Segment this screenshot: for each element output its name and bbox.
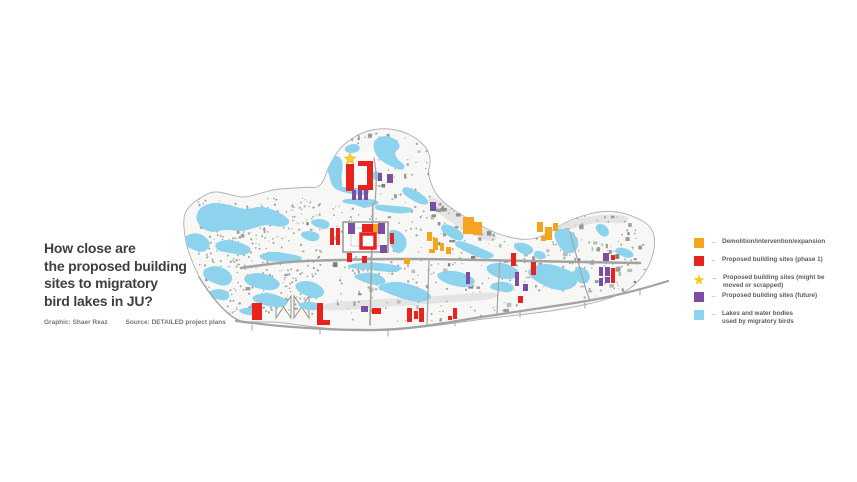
marker-future: [358, 190, 362, 200]
legend-dash: –: [709, 256, 718, 266]
lakes-swatch: [694, 310, 704, 320]
marker-demolition: [537, 222, 543, 232]
legend-label-scrapped: Proposed building sites (might be: [723, 274, 824, 282]
marker-demolition: [553, 223, 558, 231]
credit-graphic: Graphic: Shaer Reaz: [44, 319, 108, 326]
page-title-line-3: sites to migratory: [44, 275, 214, 293]
marker-phase1: [611, 268, 615, 283]
marker-phase1: [362, 256, 367, 263]
page-title-line-1: How close are: [44, 240, 214, 258]
marker-phase1: [611, 255, 615, 260]
page-title-line-4: bird lakes in JU?: [44, 293, 214, 311]
credit-source: Source: DETAILED project plans: [126, 319, 226, 326]
marker-future: [605, 277, 610, 283]
legend-label-future: Proposed building sites (future): [722, 292, 817, 300]
legend-label-demolition: Demolition/intervention/expansion: [722, 238, 825, 246]
marker-phase1: [511, 253, 516, 266]
legend-item-scrapped: – Proposed building sites (might be move…: [694, 274, 857, 289]
legend-dash: –: [710, 274, 719, 284]
marker-phase1: [346, 164, 354, 191]
marker-demolition: [440, 243, 444, 251]
marker-phase1: [317, 320, 330, 325]
marker-phase1: [453, 308, 457, 319]
marker-future: [364, 190, 368, 200]
marker-future: [466, 272, 470, 284]
marker-demolition: [433, 238, 438, 250]
marker-future: [387, 174, 393, 183]
marker-phase1: [347, 253, 352, 262]
legend-label-scrapped-2: moved or scrapped): [723, 282, 824, 290]
legend-item-demolition: – Demolition/intervention/expansion: [694, 238, 857, 248]
marker-phase1: [531, 262, 536, 275]
page-title-line-2: the proposed building: [44, 258, 214, 276]
star-icon: [693, 274, 705, 286]
marker-demolition: [427, 232, 432, 241]
marker-demolition: [404, 258, 410, 264]
legend: – Demolition/intervention/expansion – Pr…: [694, 238, 857, 328]
future-swatch: [694, 292, 704, 302]
phase1-swatch: [694, 256, 704, 266]
marker-future: [378, 173, 382, 181]
marker-future: [603, 253, 609, 261]
legend-item-future: – Proposed building sites (future): [694, 292, 857, 302]
marker-demolition: [463, 217, 474, 234]
marker-phase1: [336, 228, 340, 245]
marker-phase1: [330, 228, 334, 245]
marker-future: [361, 306, 368, 312]
marker-phase1: [390, 233, 394, 244]
infographic-canvas: How close are the proposed building site…: [0, 0, 857, 482]
marker-demolition: [541, 236, 546, 241]
marker-phase1: [362, 224, 373, 232]
marker-future: [599, 267, 603, 276]
marker-demolition: [429, 249, 435, 253]
credits: Graphic: Shaer ReazSource: DETAILED proj…: [44, 319, 226, 326]
marker-phase1: [419, 308, 424, 322]
legend-item-lakes: – Lakes and water bodies used by migrato…: [694, 310, 857, 325]
marker-phase1: [252, 303, 262, 320]
legend-dash: –: [709, 238, 718, 248]
marker-future: [599, 278, 603, 286]
marker-future: [352, 190, 356, 200]
marker-future: [430, 202, 436, 211]
demolition-swatch: [694, 238, 704, 248]
legend-label-lakes-2: used by migratory birds: [722, 318, 794, 326]
legend-item-phase1: – Proposed building sites (phase 1): [694, 256, 857, 266]
marker-phase1: [518, 296, 523, 303]
marker-demolition: [473, 222, 482, 235]
marker-demolition: [446, 247, 451, 254]
legend-dash: –: [709, 310, 718, 320]
marker-phase1: [372, 308, 381, 314]
marker-future: [605, 267, 610, 276]
marker-phase1-ring: [361, 234, 375, 248]
marker-future: [378, 223, 385, 234]
marker-future: [348, 223, 355, 234]
marker-demolition: [545, 227, 552, 240]
marker-future: [515, 272, 519, 286]
marker-phase1: [358, 185, 373, 190]
marker-future: [523, 284, 528, 291]
marker-future: [380, 245, 387, 253]
legend-dash: –: [709, 292, 718, 302]
title-block: How close are the proposed building site…: [44, 240, 214, 310]
marker-phase1: [448, 316, 452, 320]
marker-phase1: [414, 311, 418, 319]
legend-label-phase1: Proposed building sites (phase 1): [722, 256, 823, 264]
legend-label-lakes: Lakes and water bodies: [722, 310, 794, 318]
marker-phase1: [407, 308, 412, 322]
